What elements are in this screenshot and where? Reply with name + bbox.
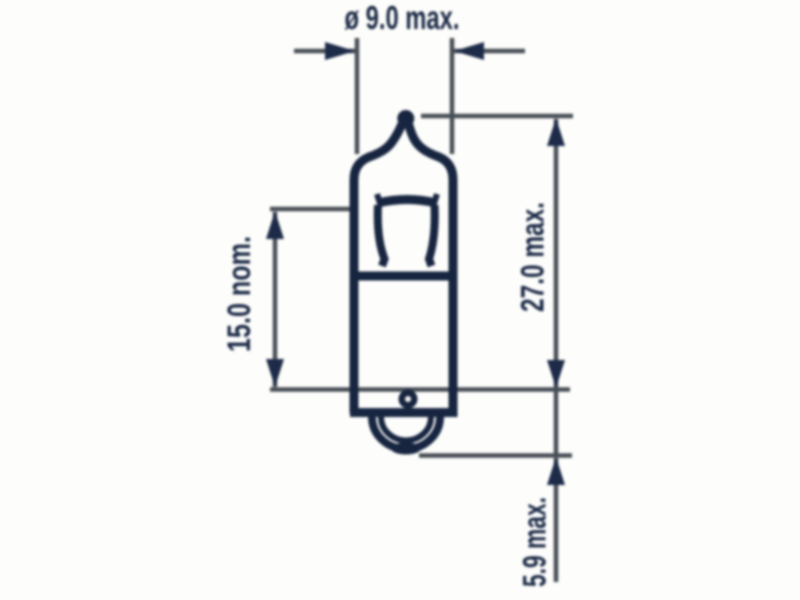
svg-text:27.0 max.: 27.0 max.	[515, 202, 551, 312]
svg-text:15.0 nom.: 15.0 nom.	[222, 236, 258, 352]
svg-text:5.9 max.: 5.9 max.	[517, 497, 553, 587]
svg-text:ø 9.0 max.: ø 9.0 max.	[345, 0, 460, 37]
